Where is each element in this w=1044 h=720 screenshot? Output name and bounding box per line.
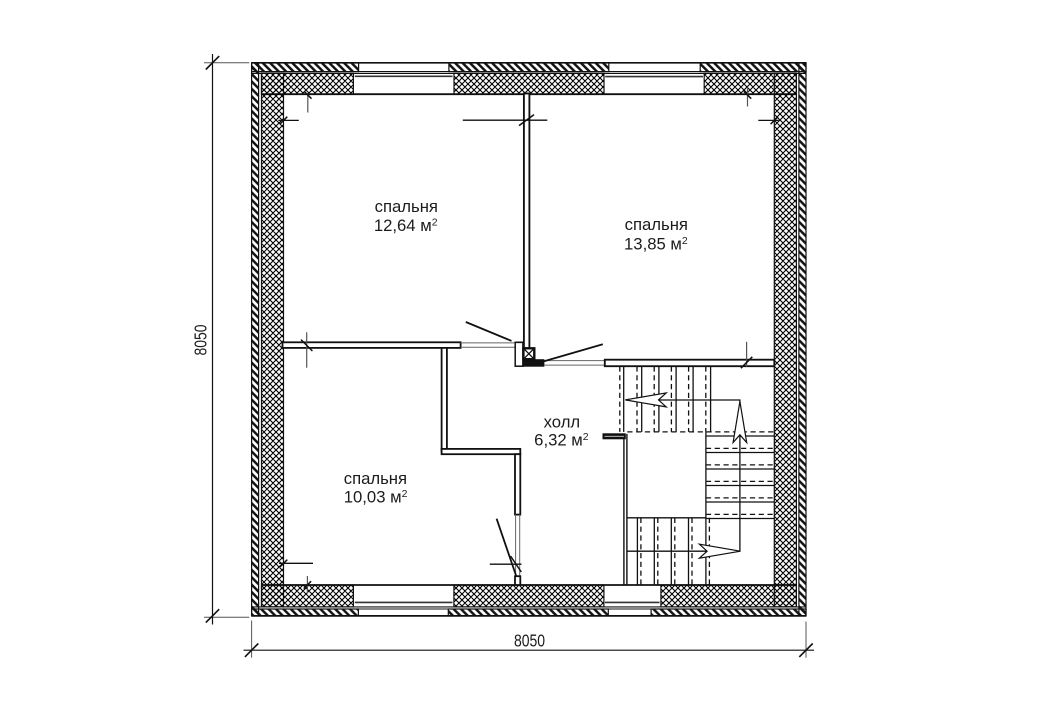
- svg-text:12,64 м2: 12,64 м2: [374, 216, 438, 235]
- svg-text:10,03 м2: 10,03 м2: [344, 488, 408, 507]
- svg-text:6,32 м2: 6,32 м2: [534, 431, 589, 450]
- svg-text:8050: 8050: [192, 324, 211, 355]
- svg-text:8050: 8050: [514, 632, 545, 651]
- svg-text:спальня: спальня: [344, 469, 407, 488]
- svg-text:спальня: спальня: [625, 215, 688, 234]
- svg-text:холл: холл: [544, 412, 581, 431]
- svg-text:13,85 м2: 13,85 м2: [624, 235, 688, 254]
- svg-text:спальня: спальня: [375, 197, 438, 216]
